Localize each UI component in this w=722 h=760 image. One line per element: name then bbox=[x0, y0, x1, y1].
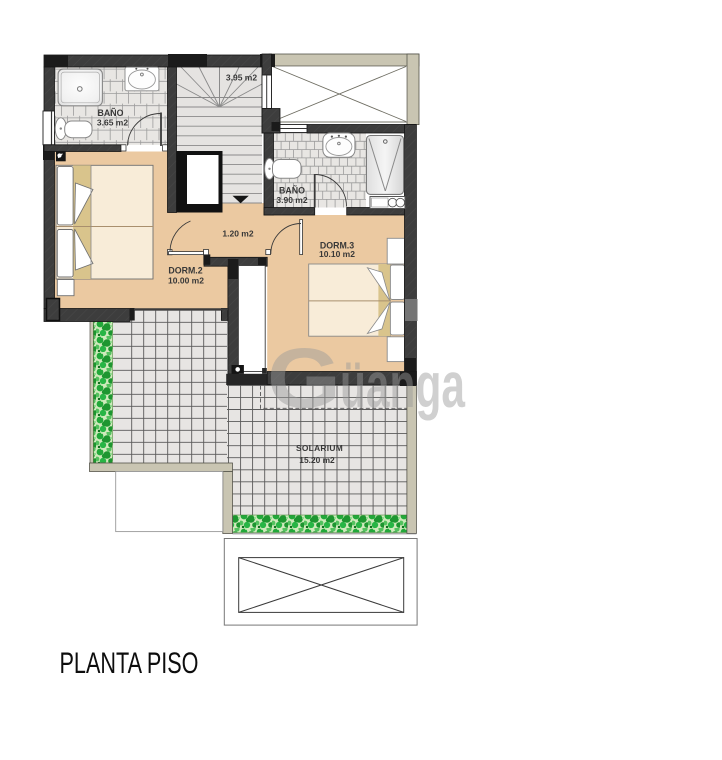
svg-text:3.65 m2: 3.65 m2 bbox=[97, 118, 128, 128]
svg-text:BAÑO: BAÑO bbox=[98, 108, 124, 118]
svg-text:G: G bbox=[267, 331, 341, 425]
svg-text:15.20 m2: 15.20 m2 bbox=[299, 455, 335, 465]
svg-text:PLANTA PISO: PLANTA PISO bbox=[60, 647, 199, 680]
svg-text:üanga: üanga bbox=[340, 349, 465, 421]
svg-text:10.00 m2: 10.00 m2 bbox=[168, 276, 204, 286]
svg-text:BAÑO: BAÑO bbox=[279, 186, 305, 196]
svg-text:3.95 m2: 3.95 m2 bbox=[226, 73, 257, 83]
svg-text:10.10 m2: 10.10 m2 bbox=[319, 249, 355, 259]
svg-text:SOLARIUM: SOLARIUM bbox=[296, 443, 343, 453]
svg-text:1.20 m2: 1.20 m2 bbox=[222, 229, 253, 239]
svg-text:3.90 m2: 3.90 m2 bbox=[276, 195, 307, 205]
svg-text:DORM.2: DORM.2 bbox=[168, 266, 202, 276]
